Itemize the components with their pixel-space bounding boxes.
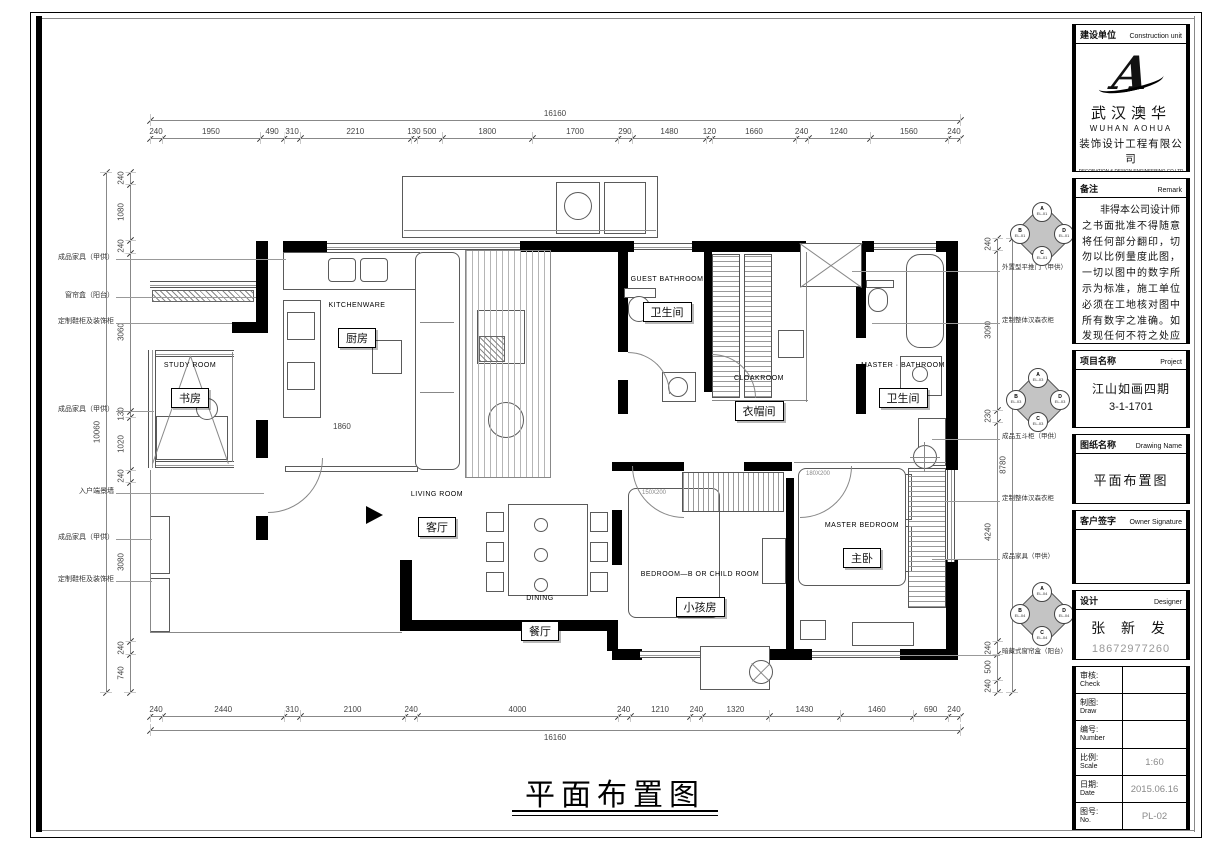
plate: [534, 518, 548, 532]
wall-segment: [936, 241, 958, 252]
wall-segment: [256, 420, 268, 458]
leader-line: [116, 539, 152, 540]
info-value: [1123, 667, 1186, 693]
furniture: [762, 538, 786, 584]
owner-signature-section: 客户签字Owner Signature: [1072, 510, 1190, 584]
dimension-label: 1480: [659, 127, 679, 136]
info-row-no: 图号:No.PL-02: [1076, 803, 1186, 829]
dimension-label: 10060: [93, 420, 102, 444]
dimension-label: 1950: [201, 127, 221, 136]
furniture: [590, 542, 608, 562]
dimension-label: 3060: [117, 322, 126, 342]
dimension-label: 240: [148, 705, 163, 714]
dimension-label: 240: [984, 640, 993, 655]
remark-text: 非得本公司设计师之书面批准不得随意将任何部分翻印，切勿以比例量度此图，一切以图中…: [1076, 198, 1186, 344]
drawing-sheet: { "page": { "bottom_title": "平面布置图" }, "…: [0, 0, 1214, 850]
leader-line: [882, 655, 1000, 656]
dim-ext: [150, 724, 151, 736]
elevation-marker: AEL-01 BEL-01 DEL-01 CEL-01: [1010, 202, 1074, 266]
room-label-cloakroom: CLOAKROOM衣帽间: [699, 375, 819, 421]
wardrobe-hatch: [682, 472, 784, 512]
dim-ext: [991, 250, 1003, 251]
furniture: [287, 362, 315, 390]
info-table-section: 审核:Check 制图:Draw 编号:Number 比例:Scale1:60 …: [1072, 666, 1190, 830]
window: [640, 651, 702, 658]
wall-segment: [256, 516, 268, 540]
dim-ext: [124, 692, 136, 693]
window: [947, 470, 955, 562]
wall-segment: [704, 252, 712, 392]
dimension-line: [130, 172, 131, 692]
section-label-en: Construction unit: [1129, 33, 1182, 40]
info-row-date: 日期:Date2015.06.16: [1076, 776, 1186, 803]
dimension-label: 500: [984, 659, 993, 674]
annotation-right-curtain-box: 暗藏式窗帘盒（阳台）: [1002, 648, 1068, 656]
hatch-area: [479, 336, 505, 362]
wall-segment: [862, 241, 874, 252]
company-line2: 装饰设计工程有限公司: [1076, 136, 1186, 166]
annotation-left-shoe-cabinet: 定制鞋柜及装饰柜: [34, 318, 114, 326]
dimension-line: [106, 172, 107, 692]
dimension-label: 3080: [117, 552, 126, 572]
date-value: 2015.06.16: [1123, 776, 1186, 802]
wall-segment: [618, 380, 628, 414]
leader-line: [116, 259, 286, 260]
dimension-label: 240: [984, 678, 993, 693]
thin-line: [404, 230, 656, 231]
dim-ext: [124, 253, 136, 254]
wall-segment: [622, 241, 634, 252]
dimension-label: 690: [923, 705, 938, 714]
annotation-left-curtain-box: 窗帘盒（阳台）: [34, 292, 114, 300]
leader-line: [116, 493, 264, 494]
dimension-label: 130: [406, 127, 421, 136]
dimension-label: 500: [422, 127, 437, 136]
thin-line: [420, 392, 454, 393]
dimension-label: 2100: [343, 705, 363, 714]
dimension-label: 4240: [984, 522, 993, 542]
wall-segment: [692, 241, 806, 252]
sheet-number-value: PL-02: [1123, 803, 1186, 829]
appliance-drum: [564, 192, 592, 220]
dimension-label: 240: [117, 640, 126, 655]
remark-section: 备注Remark 非得本公司设计师之书面批准不得随意将任何部分翻印，切勿以比例量…: [1072, 178, 1190, 344]
annotation-right-furniture: 成品家具（甲供）: [1002, 553, 1068, 561]
dim-ext: [124, 654, 136, 655]
diagonal-line: [924, 442, 925, 472]
plate: [534, 548, 548, 562]
drawing-name: 平面布置图: [1076, 470, 1186, 489]
dimension-label: 2210: [345, 127, 365, 136]
child-bed-size-label: 150X200: [642, 490, 666, 496]
dimension-label: 240: [403, 705, 418, 714]
dimension-label: 240: [946, 127, 961, 136]
dim-ext: [870, 132, 871, 144]
thin-line: [420, 322, 454, 323]
leader-line: [116, 581, 152, 582]
floor-stripes: [465, 250, 551, 478]
dimension-label: 1020: [117, 434, 126, 454]
dimension-label: 740: [117, 665, 126, 680]
annotation-right-wardrobe: 定制整体汉森衣柜: [1002, 317, 1068, 325]
dimension-label: 240: [946, 705, 961, 714]
section-label-cn: 建设单位: [1080, 28, 1116, 41]
leader-line: [942, 501, 1000, 502]
dim-ext: [913, 710, 914, 722]
dim-ext: [840, 710, 841, 722]
bathtub: [906, 254, 944, 348]
leader-line: [932, 439, 1000, 440]
leader-line: [116, 297, 256, 298]
dimension-label: 310: [284, 127, 299, 136]
dimension-label: 240: [117, 239, 126, 254]
dim-ext: [991, 422, 1003, 423]
furniture: [508, 504, 588, 596]
wall-segment: [786, 478, 794, 649]
room-label-guest-bathroom: GUEST BATHROOM卫生间: [607, 276, 727, 322]
dimension-line: [150, 120, 960, 121]
info-row-number: 编号:Number: [1076, 721, 1186, 748]
interior-dimension-label: 1860: [332, 422, 352, 431]
furniture: [866, 280, 894, 288]
dimension-line: [150, 138, 960, 139]
furniture: [800, 620, 826, 640]
title-underline-thin: [512, 815, 718, 816]
info-value: [1123, 721, 1186, 747]
room-label-master-bedroom: MASTER BEDROOM主卧: [802, 522, 922, 568]
dimension-label: 1430: [794, 705, 814, 714]
designer-section: 设计Designer 张 新 发 18672977260: [1072, 590, 1190, 660]
dimension-label: 230: [984, 408, 993, 423]
furniture: [360, 258, 388, 282]
wall-segment: [283, 241, 327, 252]
company-name-en: WUHAN AOHUA: [1076, 124, 1186, 133]
dimension-label: 240: [148, 127, 163, 136]
dimension-label: 240: [794, 127, 809, 136]
room-label-living: LIVING ROOM客厅: [377, 491, 497, 537]
room-label-child-room: BEDROOM—B OR CHILD ROOM小孩房: [640, 571, 760, 617]
dim-ext: [960, 724, 961, 736]
wall-segment: [946, 560, 958, 660]
annotation-left-furniture: 成品家具（甲供）: [34, 534, 114, 542]
furniture: [328, 258, 356, 282]
window: [150, 281, 256, 288]
dim-ext: [124, 417, 136, 418]
dimension-label: 120: [702, 127, 717, 136]
furniture: [590, 572, 608, 592]
room-label-master-bathroom: MASTER · BATHROOM卫生间: [843, 362, 963, 408]
annotation-left-shoe-cabinet: 定制鞋柜及装饰柜: [34, 576, 114, 584]
dimension-label: 1700: [565, 127, 585, 136]
dim-ext: [532, 132, 533, 144]
thin-line: [150, 470, 151, 632]
dimension-label: 4000: [508, 705, 528, 714]
dim-ext: [124, 470, 136, 471]
dimension-label: 490: [264, 127, 279, 136]
furniture: [590, 512, 608, 532]
wall-segment: [256, 241, 268, 333]
dimension-label: 1660: [744, 127, 764, 136]
dim-ext: [260, 132, 261, 144]
dim-ext: [124, 172, 136, 173]
dim-ext: [442, 132, 443, 144]
hatch-area: [152, 290, 254, 302]
dim-ext: [300, 710, 301, 722]
company-line3: DECORATION & DESIGN ENGINEERING CO.LTD: [1076, 168, 1186, 172]
annotation-right-wardrobe: 定制整体汉森衣柜: [1002, 495, 1068, 503]
leader-line: [852, 271, 1000, 272]
annotation-left-furniture: 成品家具（甲供）: [34, 254, 114, 262]
dimension-label: 8780: [999, 455, 1008, 475]
window: [327, 243, 520, 250]
info-row-draw: 制图:Draw: [1076, 694, 1186, 721]
dim-ext: [124, 240, 136, 241]
leader-line: [932, 559, 1000, 560]
entry-arrow: [366, 506, 383, 524]
window: [634, 243, 692, 250]
project-unit: 3-1-1701: [1076, 401, 1186, 413]
project-section: 项目名称Project 江山如画四期 3-1-1701: [1072, 350, 1190, 428]
dim-ext: [124, 482, 136, 483]
wall-segment: [607, 631, 618, 651]
dimension-label: 240: [616, 705, 631, 714]
room-label-study: STUDY ROOM书房: [130, 362, 250, 408]
room-label-kitchen: KITCHENWARE厨房: [297, 302, 417, 348]
dim-ext: [991, 641, 1003, 642]
dimension-label: 1210: [650, 705, 670, 714]
drawing-name-section: 图纸名称Drawing Name 平面布置图: [1072, 434, 1190, 504]
dimension-label: 16160: [543, 109, 567, 118]
dimension-label: 240: [117, 468, 126, 483]
furniture: [604, 182, 646, 234]
door-arc: [628, 352, 670, 394]
wall-segment: [400, 560, 412, 631]
dimension-label: 1460: [867, 705, 887, 714]
dimension-label: 1240: [829, 127, 849, 136]
appliance-drum: [668, 377, 688, 397]
furniture: [852, 622, 914, 646]
dim-ext: [300, 132, 301, 144]
furniture: [150, 578, 170, 632]
room-label-dining: DINING餐厅: [480, 595, 600, 641]
company-logo: A: [1076, 48, 1186, 100]
info-value: [1123, 694, 1186, 720]
annotation-right-drawer-chest: 成品五斗柜（甲供）: [1002, 433, 1068, 441]
elevation-marker: AEL-04 BEL-04 DEL-04 CEL-04: [1010, 582, 1074, 646]
dimension-label: 240: [984, 237, 993, 252]
thin-line: [150, 632, 402, 633]
furniture: [486, 542, 504, 562]
furniture: [778, 330, 804, 358]
scale-value: 1:60: [1123, 749, 1186, 775]
window: [874, 243, 936, 250]
dim-ext: [124, 641, 136, 642]
annotation-left-entry-wall: 入户端景墙: [34, 488, 114, 496]
wall-segment: [612, 510, 622, 565]
dim-ext: [100, 692, 112, 693]
dimension-label: 1560: [899, 127, 919, 136]
dim-ext: [991, 680, 1003, 681]
dimension-label: 310: [284, 705, 299, 714]
construction-unit-section: 建设单位Construction unit A 武汉澳华 WUHAN AOHUA…: [1072, 24, 1190, 172]
leader-line: [116, 323, 232, 324]
window: [148, 461, 234, 468]
wall-segment: [744, 462, 792, 471]
dim-ext: [991, 238, 1003, 239]
sheet-title: 平面布置图: [470, 770, 760, 814]
wall-segment: [232, 322, 268, 333]
dimension-label: 2440: [213, 705, 233, 714]
company-name-cn: 武汉澳华: [1076, 102, 1186, 123]
dimension-label: 290: [617, 127, 632, 136]
title-underline: [512, 810, 718, 812]
dim-ext: [100, 172, 112, 173]
dimension-line: [150, 730, 960, 731]
dimension-label: 240: [689, 705, 704, 714]
sofa: [415, 252, 460, 470]
dim-ext: [769, 710, 770, 722]
dimension-label: 1320: [726, 705, 746, 714]
leader-line: [116, 411, 154, 412]
diagonal-line: [910, 457, 940, 458]
plate: [534, 578, 548, 592]
info-row-scale: 比例:Scale1:60: [1076, 749, 1186, 776]
dimension-label: 130: [117, 406, 126, 421]
elevation-marker: AEL-03 BEL-03 DEL-03 CEL-03: [1006, 368, 1070, 432]
designer-name: 张 新 发: [1076, 618, 1186, 638]
designer-phone: 18672977260: [1076, 643, 1186, 655]
dimension-label: 1800: [477, 127, 497, 136]
dim-ext: [991, 692, 1003, 693]
dimension-label: 16160: [543, 733, 567, 742]
dim-ext: [991, 410, 1003, 411]
info-row-check: 审核:Check: [1076, 667, 1186, 694]
door-arc: [268, 458, 323, 513]
dim-ext: [150, 114, 151, 126]
project-name: 江山如画四期: [1076, 380, 1186, 397]
dim-ext: [960, 114, 961, 126]
furniture: [150, 516, 170, 574]
dim-ext: [1006, 692, 1018, 693]
dimension-label: 1080: [117, 202, 126, 222]
annotation-left-furniture: 成品家具（甲供）: [34, 406, 114, 414]
dim-ext: [124, 184, 136, 185]
master-bed-size-label: 180X200: [806, 471, 830, 477]
wall-segment: [946, 252, 958, 470]
dimension-label: 240: [117, 171, 126, 186]
leader-line: [872, 323, 1000, 324]
toilet-icon: [868, 288, 888, 312]
furniture: [486, 572, 504, 592]
